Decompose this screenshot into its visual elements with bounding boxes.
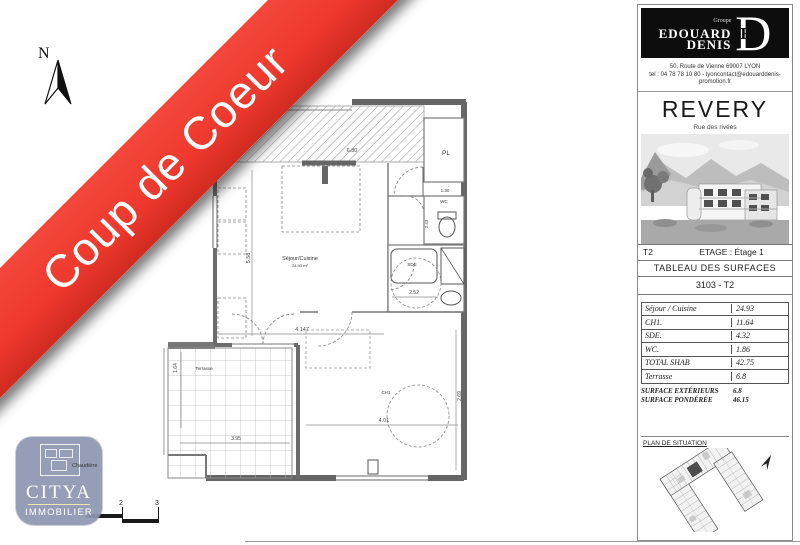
surface-value: 4.32: [731, 331, 788, 340]
room-label: PL: [442, 150, 450, 157]
lot-reference: 3103 - T2: [638, 277, 792, 295]
building-photo: [641, 134, 789, 244]
surface-label: SDE.: [642, 331, 731, 340]
listing-panel: Groupe EDOUARD DENIS D E 50, Route de Vi…: [637, 4, 793, 541]
summary-row: SURFACE EXTÉRIEURS6.8: [641, 387, 789, 396]
north-label: N: [38, 45, 50, 62]
situation-section: PLAN DE SITUATION: [641, 436, 789, 537]
scale-tick-label: 2: [119, 500, 123, 507]
floor-label: ETAGE : Étage 1: [671, 247, 792, 257]
room-label: Terrasse: [195, 366, 213, 371]
scale-tick-label: 3: [155, 500, 159, 507]
surface-value: 11.64: [731, 318, 788, 327]
unit-spec-row: T2 ETAGE : Étage 1: [638, 244, 792, 261]
dimension-label: 2.43: [424, 219, 429, 228]
map-north-arrow-icon: [761, 453, 774, 470]
developer-monogram-icon: D E: [737, 10, 771, 56]
building-glyph-icon: [40, 444, 80, 476]
summary-label: SURFACE EXTÉRIEURS: [641, 387, 733, 395]
developer-logo: Groupe EDOUARD DENIS D E: [641, 8, 789, 58]
citya-line2: IMMOBILIER: [25, 507, 93, 518]
listing-sheet: N: [0, 0, 800, 545]
surface-value: 1.86: [731, 345, 788, 354]
citya-divider: [28, 504, 90, 505]
surface-label: Séjour / Cuisine: [642, 304, 731, 313]
dimension-label: 4.147: [295, 327, 309, 333]
room-label: SDE: [407, 262, 416, 267]
room-label: 24.93 m²: [292, 263, 308, 268]
citya-logo: CITYA IMMOBILIER: [16, 437, 102, 525]
developer-address: 50, Route de Vienne 69007 LYON tel : 04 …: [638, 61, 792, 92]
room-label: CH1: [381, 390, 390, 395]
address-line: 50, Route de Vienne 69007 LYON: [640, 64, 790, 72]
north-arrow-icon: N: [38, 45, 71, 104]
surface-label: Terrasse: [642, 372, 731, 381]
surface-label: CH1.: [642, 318, 731, 327]
situation-title: PLAN DE SITUATION: [643, 440, 789, 447]
surfaces-table-title: TABLEAU DES SURFACES: [638, 261, 792, 277]
surface-row: Séjour / Cuisine24.93: [642, 303, 788, 317]
program-subtitle: Rue des rivées: [638, 123, 792, 134]
surfaces-table: Séjour / Cuisine24.93CH1.11.64SDE.4.32WC…: [641, 302, 789, 384]
surface-value: 24.93: [731, 304, 788, 313]
dimension-label: 6.80: [347, 148, 358, 154]
dimension-label: 5.58: [246, 253, 252, 264]
room-label: WC: [440, 199, 448, 204]
dimension-label: 1.64: [173, 363, 179, 373]
program-name: REVERY: [638, 92, 792, 123]
dimension-label: 1.30: [441, 188, 450, 193]
scale-tick: [158, 507, 159, 523]
boiler-annotation: Chaudière: [72, 463, 97, 469]
citya-name: CITYA: [26, 483, 92, 503]
dimension-label: 3.95: [231, 436, 241, 442]
dimension-label: 2.52: [409, 290, 419, 296]
surface-row: SDE.4.32: [642, 330, 788, 344]
surfaces-summary: SURFACE EXTÉRIEURS6.8SURFACE PONDÉRÉE46.…: [641, 387, 789, 405]
address-line: tel : 04 78 78 10 80 - lyoncontact@edoua…: [640, 72, 790, 80]
surface-value: 6.8: [731, 372, 788, 381]
address-line: promotion.fr: [640, 79, 790, 87]
surface-row: WC.1.86: [642, 343, 788, 357]
dimension-label: 2.69: [457, 391, 463, 401]
surface-label: TOTAL SHAB: [642, 358, 731, 367]
surface-row: CH1.11.64: [642, 316, 788, 330]
surface-value: 42.75: [731, 358, 788, 367]
unit-type: T2: [638, 247, 671, 257]
summary-value: 6.8: [733, 387, 742, 395]
situation-map: [641, 448, 789, 532]
dimension-label: 4.01: [379, 418, 390, 424]
summary-value: 46.15: [733, 396, 749, 404]
scale-segment: [122, 519, 158, 523]
surface-row: Terrasse6.8: [642, 370, 788, 383]
surface-label: WC.: [642, 345, 731, 354]
summary-row: SURFACE PONDÉRÉE46.15: [641, 396, 789, 405]
summary-label: SURFACE PONDÉRÉE: [641, 396, 733, 404]
room-label: Séjour/Cuisine: [282, 256, 318, 262]
scale-tick: [122, 507, 123, 523]
surface-row: TOTAL SHAB42.75: [642, 357, 788, 371]
